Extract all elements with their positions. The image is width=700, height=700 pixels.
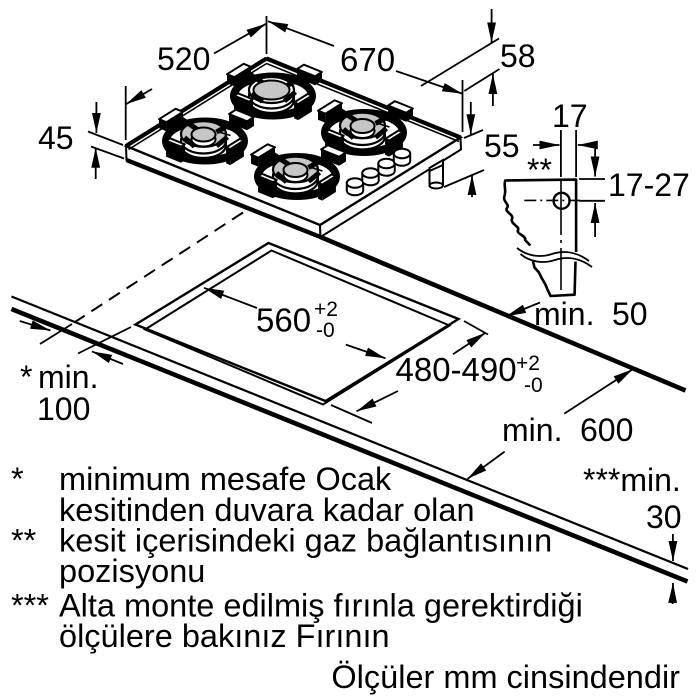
svg-text:560: 560 [256, 302, 311, 339]
svg-text:-0: -0 [524, 374, 543, 397]
svg-text:45: 45 [38, 120, 74, 156]
svg-text:*: * [20, 359, 32, 395]
svg-text:Ölçüler mm cinsindendir: Ölçüler mm cinsindendir [331, 659, 680, 695]
svg-text:520: 520 [157, 41, 210, 77]
svg-text:55: 55 [484, 128, 520, 164]
svg-text:*: * [11, 461, 24, 497]
svg-text:pozisyonu: pozisyonu [59, 553, 205, 589]
svg-text:30: 30 [646, 499, 682, 535]
svg-text:+2: +2 [314, 298, 338, 321]
svg-text:-0: -0 [316, 319, 335, 342]
svg-text:480-490: 480-490 [396, 351, 517, 388]
svg-text:100: 100 [37, 391, 90, 427]
svg-text:50: 50 [612, 296, 648, 332]
svg-text:min.: min. [38, 359, 98, 395]
svg-text:17: 17 [552, 98, 588, 134]
svg-text:17-27: 17-27 [608, 167, 690, 203]
svg-text:670: 670 [340, 41, 395, 78]
svg-text:+2: +2 [516, 352, 540, 375]
svg-text:**: ** [11, 523, 37, 559]
svg-text:58: 58 [500, 38, 536, 74]
svg-text:**: ** [527, 152, 552, 188]
svg-text:min.: min. [534, 296, 594, 332]
svg-text:***min.: ***min. [583, 462, 681, 498]
svg-text:***: *** [11, 588, 49, 624]
svg-text:min.: min. [502, 412, 562, 448]
svg-text:ölçülere bakınız Fırının: ölçülere bakınız Fırının [59, 618, 390, 654]
svg-text:600: 600 [580, 412, 633, 448]
